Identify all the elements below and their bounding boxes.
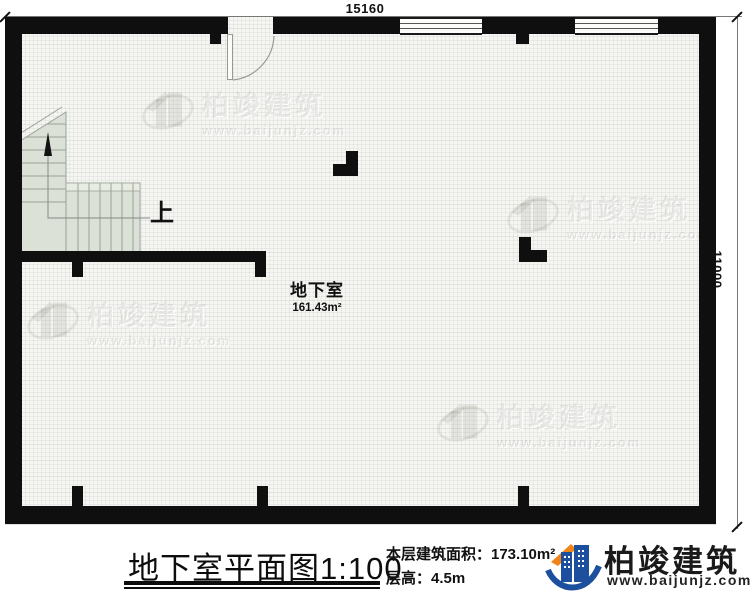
wall-top-segment <box>5 17 228 34</box>
column-stub <box>72 486 83 506</box>
l-column <box>346 151 358 176</box>
column-stub <box>518 486 529 506</box>
basement-floorplan-sheet: 柏竣建筑 www.baijunjz.com 柏竣建筑 www.baijunjz.… <box>0 0 750 598</box>
room-label: 地下室 161.43m² <box>262 276 372 314</box>
dimension-top-value: 15160 <box>330 1 400 16</box>
l-column <box>519 250 547 262</box>
room-area: 161.43m² <box>262 302 372 314</box>
column-stub <box>255 262 266 277</box>
room-name: 地下室 <box>262 276 372 301</box>
column-stub <box>210 34 221 44</box>
floor-height-info: 层高：4.5m <box>386 567 465 588</box>
dimension-right-value: 11000 <box>710 240 725 300</box>
dimension-line-right <box>737 17 738 529</box>
column-stub <box>257 486 268 506</box>
staircase <box>10 106 182 254</box>
column-stub <box>516 34 529 44</box>
brand-url: www.baijunjz.com <box>607 572 750 588</box>
wall-top-segment <box>482 17 575 34</box>
wall-bottom <box>5 506 716 524</box>
title-underline <box>124 581 380 589</box>
wall-top-segment <box>273 17 400 34</box>
window-symbol <box>400 17 482 35</box>
wall-interior-stair <box>12 251 266 262</box>
door-leaf <box>227 34 233 80</box>
door-swing-arc <box>225 30 281 88</box>
floor-area <box>5 17 716 525</box>
floor-area-info: 本层建筑面积：173.10m² <box>386 543 555 564</box>
stair-up-label: 上 <box>150 193 174 228</box>
window-symbol <box>575 17 658 35</box>
brand-logo-icon <box>545 536 603 594</box>
column-stub <box>72 262 83 277</box>
wall-left <box>5 17 22 524</box>
